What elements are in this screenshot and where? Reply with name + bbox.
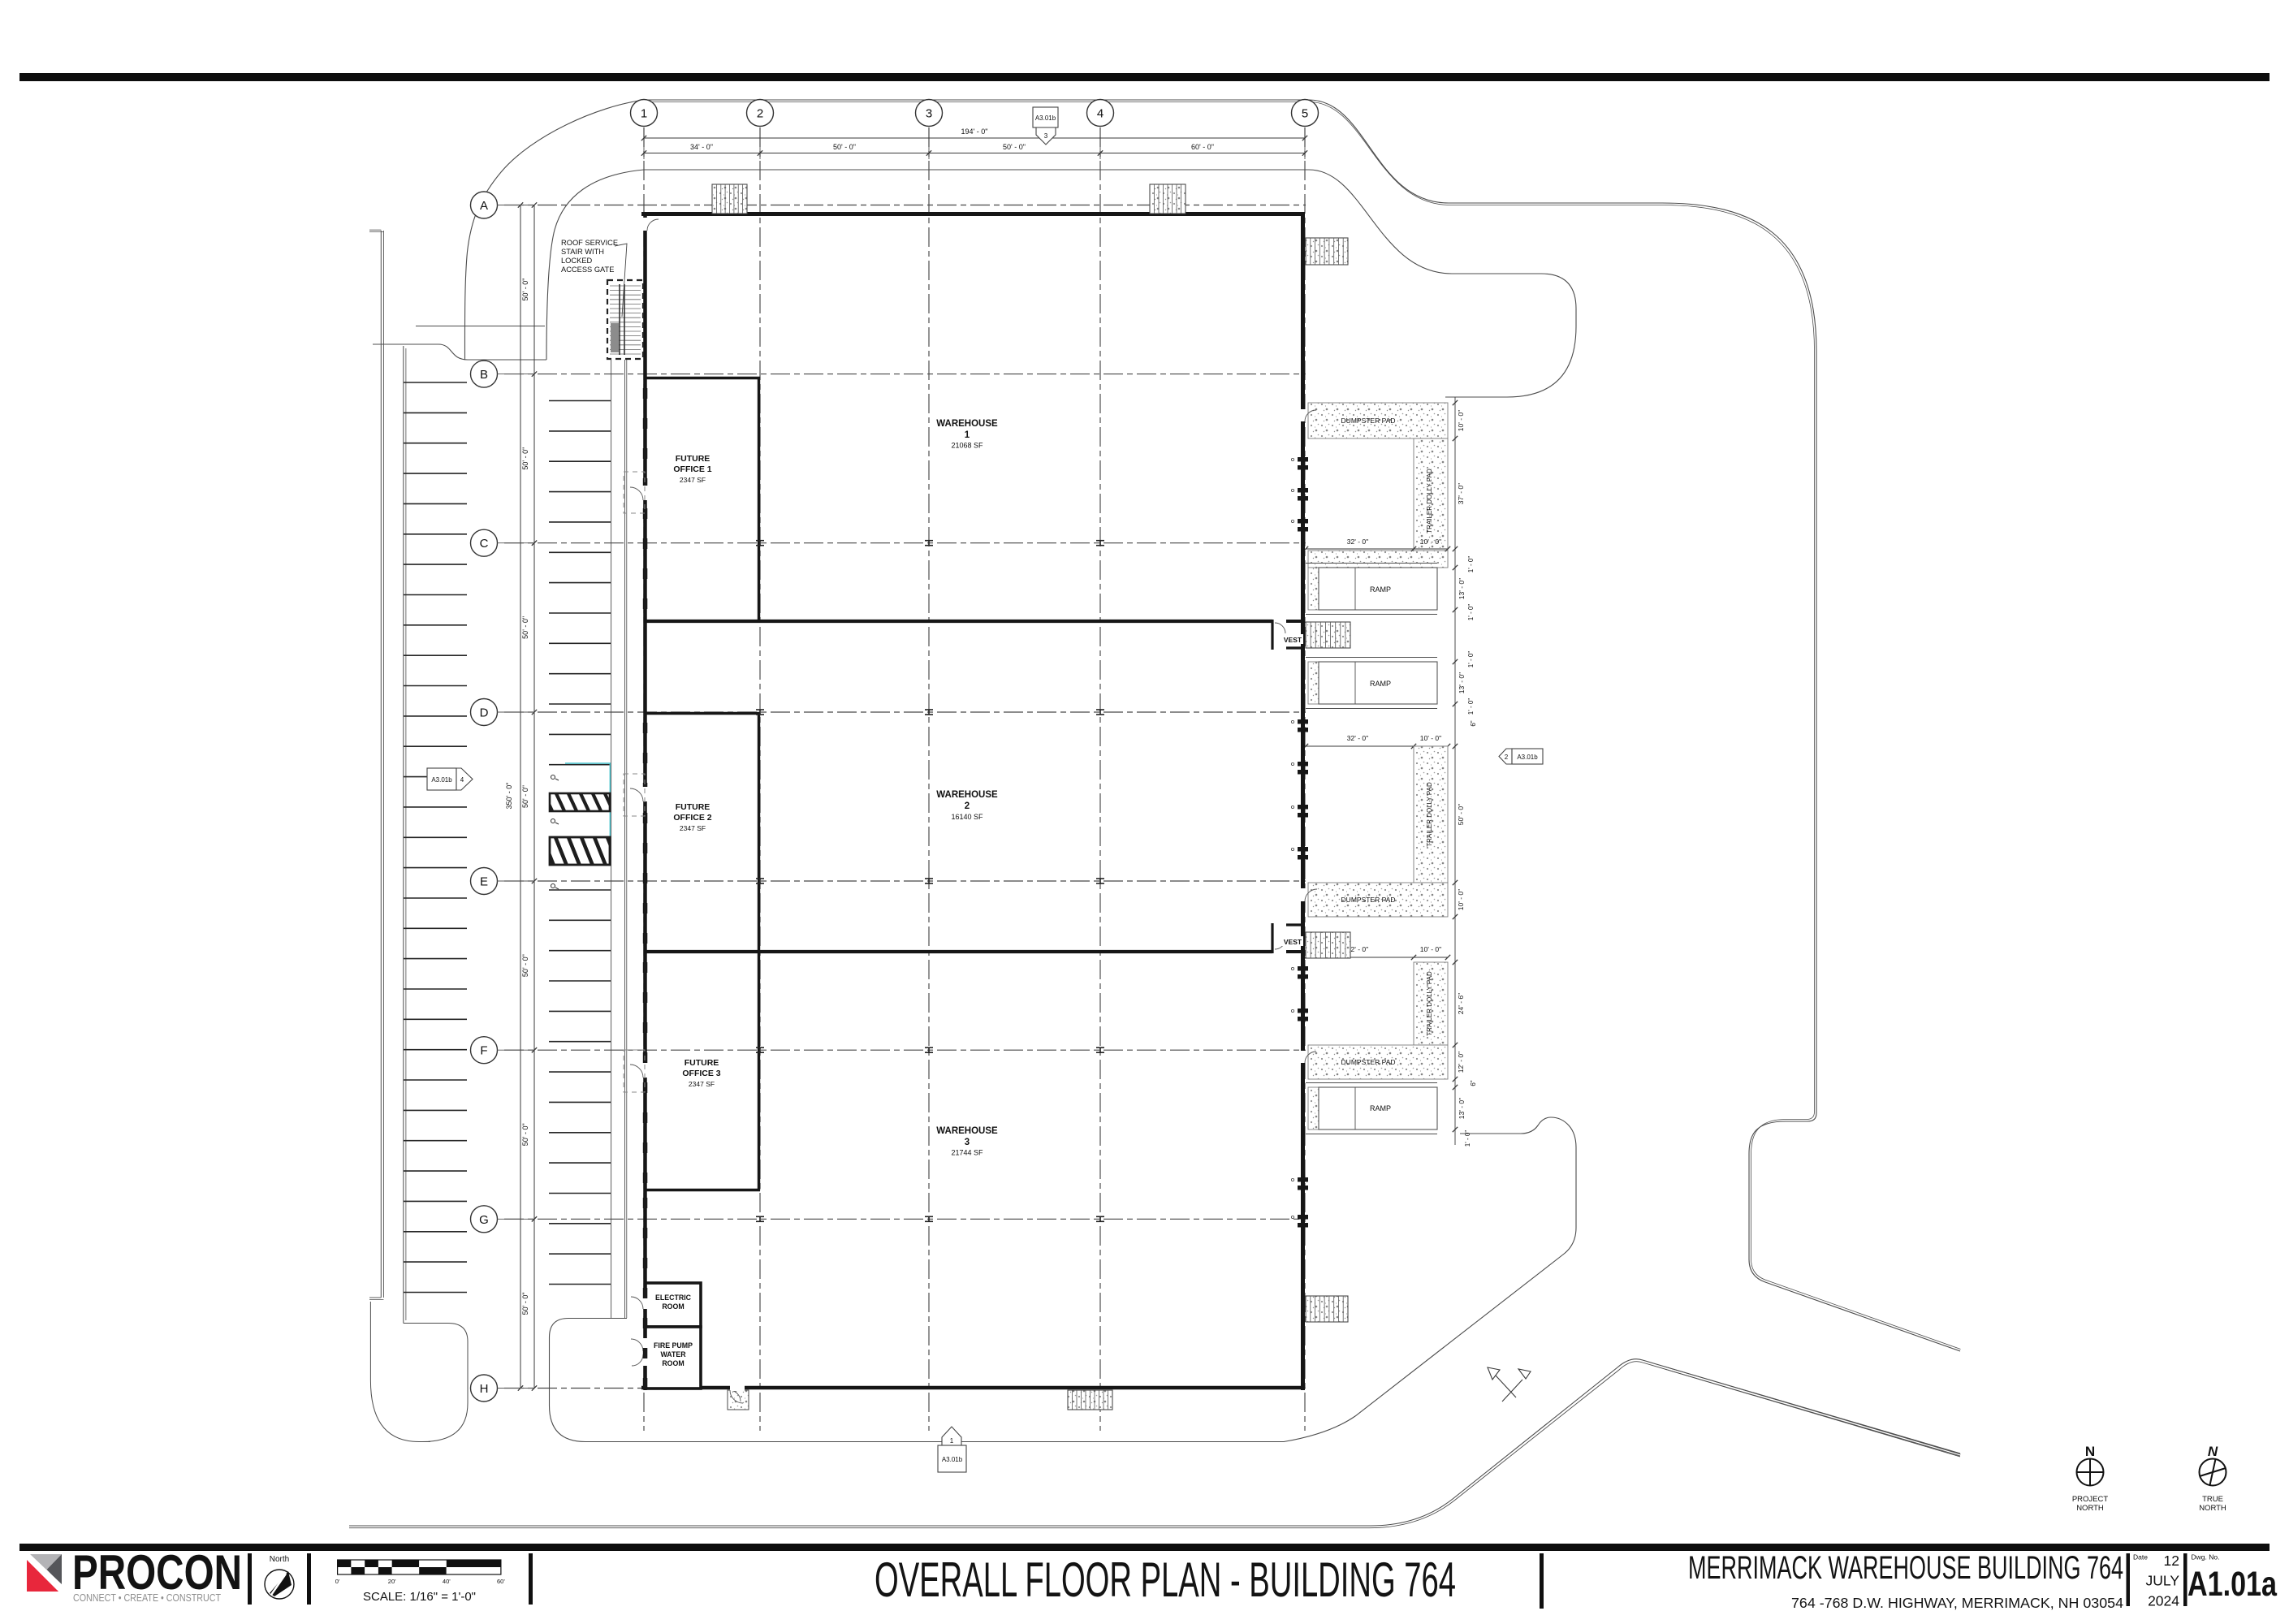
svg-text:TRAILER DOLLY PAD: TRAILER DOLLY PAD xyxy=(1426,782,1433,847)
svg-text:3: 3 xyxy=(1044,132,1048,140)
svg-text:N: N xyxy=(2085,1444,2095,1459)
svg-text:10' - 0": 10' - 0" xyxy=(1420,538,1441,546)
svg-text:6": 6" xyxy=(1470,720,1477,726)
svg-text:North: North xyxy=(270,1555,289,1564)
svg-text:50' - 0": 50' - 0" xyxy=(1457,804,1465,825)
svg-text:FIRE PUMP: FIRE PUMP xyxy=(654,1341,693,1350)
svg-text:B: B xyxy=(480,368,488,382)
svg-text:DUMPSTER PAD: DUMPSTER PAD xyxy=(1341,896,1396,904)
svg-text:10' - 0": 10' - 0" xyxy=(1420,734,1441,742)
svg-text:1: 1 xyxy=(641,107,647,121)
svg-text:ROOF SERVICE: ROOF SERVICE xyxy=(561,239,618,247)
svg-text:50' - 0": 50' - 0" xyxy=(833,143,856,151)
svg-text:E: E xyxy=(480,875,488,889)
svg-text:12' - 0": 12' - 0" xyxy=(1457,1052,1465,1073)
svg-text:3: 3 xyxy=(926,107,932,121)
svg-text:RAMP: RAMP xyxy=(1370,1104,1391,1112)
svg-text:FUTURE: FUTURE xyxy=(676,454,710,464)
svg-text:24' - 6": 24' - 6" xyxy=(1457,993,1465,1014)
svg-text:MERRIMACK WAREHOUSE BUILDING 7: MERRIMACK WAREHOUSE BUILDING 764 xyxy=(1688,1550,2123,1586)
svg-text:10' - 0": 10' - 0" xyxy=(1457,410,1465,431)
svg-text:4: 4 xyxy=(460,776,464,784)
svg-text:10' - 0": 10' - 0" xyxy=(1420,945,1441,953)
svg-text:2347 SF: 2347 SF xyxy=(680,824,706,832)
svg-text:350' - 0": 350' - 0" xyxy=(505,783,513,810)
svg-text:3: 3 xyxy=(965,1138,970,1147)
svg-text:1' - 0": 1' - 0" xyxy=(1467,556,1475,573)
svg-text:1' - 0": 1' - 0" xyxy=(1467,651,1475,668)
svg-text:12: 12 xyxy=(2164,1553,2179,1569)
svg-text:NORTH: NORTH xyxy=(2199,1504,2226,1513)
svg-text:VEST: VEST xyxy=(1284,636,1302,644)
svg-text:LOCKED: LOCKED xyxy=(561,257,593,265)
svg-text:10' - 0": 10' - 0" xyxy=(1457,889,1465,910)
svg-text:194' - 0": 194' - 0" xyxy=(961,127,988,136)
svg-text:TRAILER DOLLY PAD: TRAILER DOLLY PAD xyxy=(1426,469,1433,533)
svg-text:60' - 0": 60' - 0" xyxy=(1191,143,1214,151)
svg-text:0': 0' xyxy=(335,1578,340,1585)
svg-text:2: 2 xyxy=(757,107,763,121)
svg-text:A3.01b: A3.01b xyxy=(1035,114,1056,122)
svg-text:50' - 0": 50' - 0" xyxy=(521,447,529,470)
svg-text:G: G xyxy=(479,1213,489,1227)
svg-text:21744 SF: 21744 SF xyxy=(951,1149,983,1157)
svg-text:D: D xyxy=(480,706,489,720)
svg-text:32' - 0": 32' - 0" xyxy=(1347,734,1368,742)
svg-text:50' - 0": 50' - 0" xyxy=(521,279,529,301)
svg-text:2347 SF: 2347 SF xyxy=(680,476,706,484)
svg-text:764 -768 D.W. HIGHWAY, MERRIMA: 764 -768 D.W. HIGHWAY, MERRIMACK, NH 030… xyxy=(1791,1595,2123,1611)
svg-text:13' - 0": 13' - 0" xyxy=(1458,1098,1466,1119)
svg-text:VEST: VEST xyxy=(1284,938,1302,946)
svg-text:1: 1 xyxy=(965,430,970,440)
svg-text:SCALE: 1/16" = 1'-0": SCALE: 1/16" = 1'-0" xyxy=(363,1591,476,1604)
svg-text:32' - 0": 32' - 0" xyxy=(1347,538,1368,546)
svg-text:5: 5 xyxy=(1302,107,1308,121)
svg-text:STAIR WITH: STAIR WITH xyxy=(561,248,604,256)
svg-text:2347 SF: 2347 SF xyxy=(689,1080,715,1088)
svg-text:50' - 0": 50' - 0" xyxy=(521,1292,529,1315)
svg-text:PROCON: PROCON xyxy=(72,1545,242,1600)
svg-text:RAMP: RAMP xyxy=(1370,680,1391,688)
svg-text:ROOM: ROOM xyxy=(662,1359,684,1367)
svg-text:FUTURE: FUTURE xyxy=(685,1058,719,1068)
svg-text:2: 2 xyxy=(1505,754,1509,761)
svg-text:16140 SF: 16140 SF xyxy=(951,813,983,821)
svg-text:37' - 0": 37' - 0" xyxy=(1457,483,1465,504)
svg-text:H: H xyxy=(480,1382,489,1396)
svg-text:ACCESS GATE: ACCESS GATE xyxy=(561,266,614,274)
svg-text:2024: 2024 xyxy=(2148,1593,2179,1609)
svg-text:WAREHOUSE: WAREHOUSE xyxy=(936,1126,998,1136)
svg-text:50' - 0": 50' - 0" xyxy=(521,954,529,977)
svg-text:C: C xyxy=(480,537,489,551)
svg-text:OVERALL FLOOR PLAN - BUILDING: OVERALL FLOOR PLAN - BUILDING 764 xyxy=(875,1553,1456,1607)
svg-text:FUTURE: FUTURE xyxy=(676,802,710,812)
svg-text:DUMPSTER PAD: DUMPSTER PAD xyxy=(1341,417,1396,425)
svg-text:1: 1 xyxy=(950,1437,954,1445)
svg-text:13' - 0": 13' - 0" xyxy=(1458,672,1466,693)
svg-text:20': 20' xyxy=(388,1578,396,1585)
svg-text:A3.01b: A3.01b xyxy=(1517,754,1538,761)
svg-text:PROJECT: PROJECT xyxy=(2072,1495,2109,1504)
svg-text:34' - 0": 34' - 0" xyxy=(690,143,713,151)
svg-text:OFFICE 1: OFFICE 1 xyxy=(673,464,711,474)
svg-text:WATER: WATER xyxy=(660,1350,686,1358)
svg-text:OFFICE 2: OFFICE 2 xyxy=(673,813,711,823)
svg-text:21068 SF: 21068 SF xyxy=(951,442,983,450)
svg-text:13' - 0": 13' - 0" xyxy=(1458,578,1466,599)
svg-text:1' - 0": 1' - 0" xyxy=(1467,604,1475,621)
svg-text:50' - 0": 50' - 0" xyxy=(521,785,529,808)
svg-text:A1.01a: A1.01a xyxy=(2188,1565,2278,1604)
svg-text:A: A xyxy=(480,199,488,213)
svg-text:A3.01b: A3.01b xyxy=(942,1456,963,1463)
svg-text:50' - 0": 50' - 0" xyxy=(521,616,529,639)
svg-text:CONNECT • CREATE • CONSTRUCT: CONNECT • CREATE • CONSTRUCT xyxy=(73,1592,221,1604)
svg-text:1' - 0": 1' - 0" xyxy=(1464,1130,1471,1147)
svg-text:50' - 0": 50' - 0" xyxy=(1003,143,1026,151)
svg-text:F: F xyxy=(480,1044,487,1058)
svg-text:OFFICE 3: OFFICE 3 xyxy=(682,1069,720,1078)
svg-text:WAREHOUSE: WAREHOUSE xyxy=(936,790,998,800)
svg-text:50' - 0": 50' - 0" xyxy=(521,1123,529,1146)
svg-text:JULY: JULY xyxy=(2146,1573,2180,1589)
svg-text:Dwg. No.: Dwg. No. xyxy=(2192,1553,2220,1561)
svg-text:ELECTRIC: ELECTRIC xyxy=(655,1294,692,1302)
svg-text:A3.01b: A3.01b xyxy=(431,776,452,784)
svg-text:N: N xyxy=(2208,1444,2218,1459)
svg-text:DUMPSTER PAD: DUMPSTER PAD xyxy=(1341,1058,1396,1066)
svg-text:TRUE: TRUE xyxy=(2202,1495,2223,1504)
svg-text:1' - 0": 1' - 0" xyxy=(1467,698,1475,715)
svg-text:Date: Date xyxy=(2133,1553,2148,1561)
svg-text:4: 4 xyxy=(1097,107,1103,121)
svg-text:40': 40' xyxy=(443,1578,451,1585)
svg-text:60': 60' xyxy=(497,1578,505,1585)
svg-text:TRAILER DOLLY PAD: TRAILER DOLLY PAD xyxy=(1426,971,1433,1036)
svg-text:ROOM: ROOM xyxy=(662,1302,684,1311)
svg-text:2: 2 xyxy=(965,801,970,811)
svg-text:NORTH: NORTH xyxy=(2076,1504,2104,1513)
svg-text:RAMP: RAMP xyxy=(1370,585,1391,594)
svg-text:6": 6" xyxy=(1470,1080,1477,1086)
svg-text:WAREHOUSE: WAREHOUSE xyxy=(936,419,998,429)
